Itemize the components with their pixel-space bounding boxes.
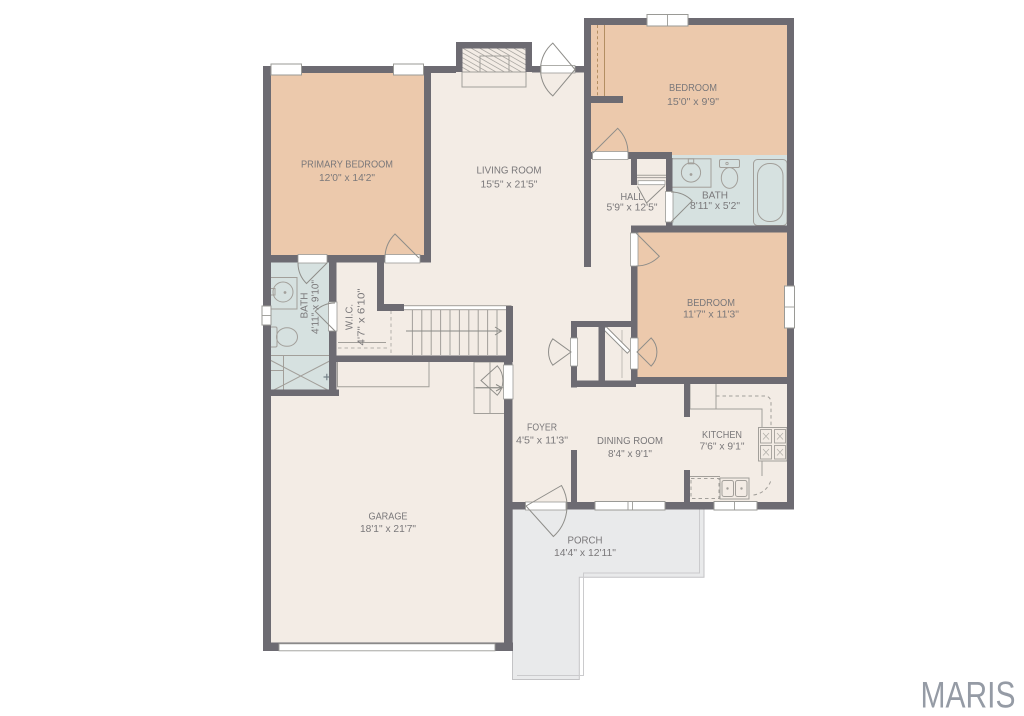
svg-text:W.I.C.: W.I.C.: [344, 304, 356, 330]
svg-text:5'9" x 12'5": 5'9" x 12'5": [607, 202, 658, 214]
svg-text:15'5" x 21'5": 15'5" x 21'5": [481, 179, 538, 191]
svg-text:12'0" x 14'2": 12'0" x 14'2": [319, 172, 375, 184]
svg-text:8'4" x 9'1": 8'4" x 9'1": [608, 448, 652, 460]
svg-text:PORCH: PORCH: [568, 535, 603, 547]
svg-text:7'6" x 9'1": 7'6" x 9'1": [700, 441, 745, 453]
svg-text:BEDROOM: BEDROOM: [669, 82, 717, 94]
svg-text:KITCHEN: KITCHEN: [702, 429, 742, 441]
svg-text:PRIMARY BEDROOM: PRIMARY BEDROOM: [301, 159, 393, 171]
svg-text:GARAGE: GARAGE: [369, 511, 408, 523]
svg-text:15'0" x 9'9": 15'0" x 9'9": [667, 96, 719, 108]
svg-text:4'5" x 11'3": 4'5" x 11'3": [516, 435, 568, 447]
svg-text:MARIS: MARIS: [921, 675, 1016, 716]
svg-text:4'7" x 6'10": 4'7" x 6'10": [356, 288, 368, 345]
svg-text:LIVING ROOM: LIVING ROOM: [477, 165, 542, 177]
svg-text:FOYER: FOYER: [527, 422, 557, 434]
svg-text:4'11" x 9'10": 4'11" x 9'10": [310, 280, 322, 334]
svg-text:11'7" x 11'3": 11'7" x 11'3": [683, 309, 739, 321]
svg-text:8'11" x 5'2": 8'11" x 5'2": [690, 200, 740, 212]
svg-text:18'1" x 21'7": 18'1" x 21'7": [360, 523, 416, 535]
svg-text:14'4" x 12'11": 14'4" x 12'11": [554, 547, 616, 559]
svg-text:DINING ROOM: DINING ROOM: [597, 435, 663, 447]
svg-text:BEDROOM: BEDROOM: [687, 297, 735, 309]
